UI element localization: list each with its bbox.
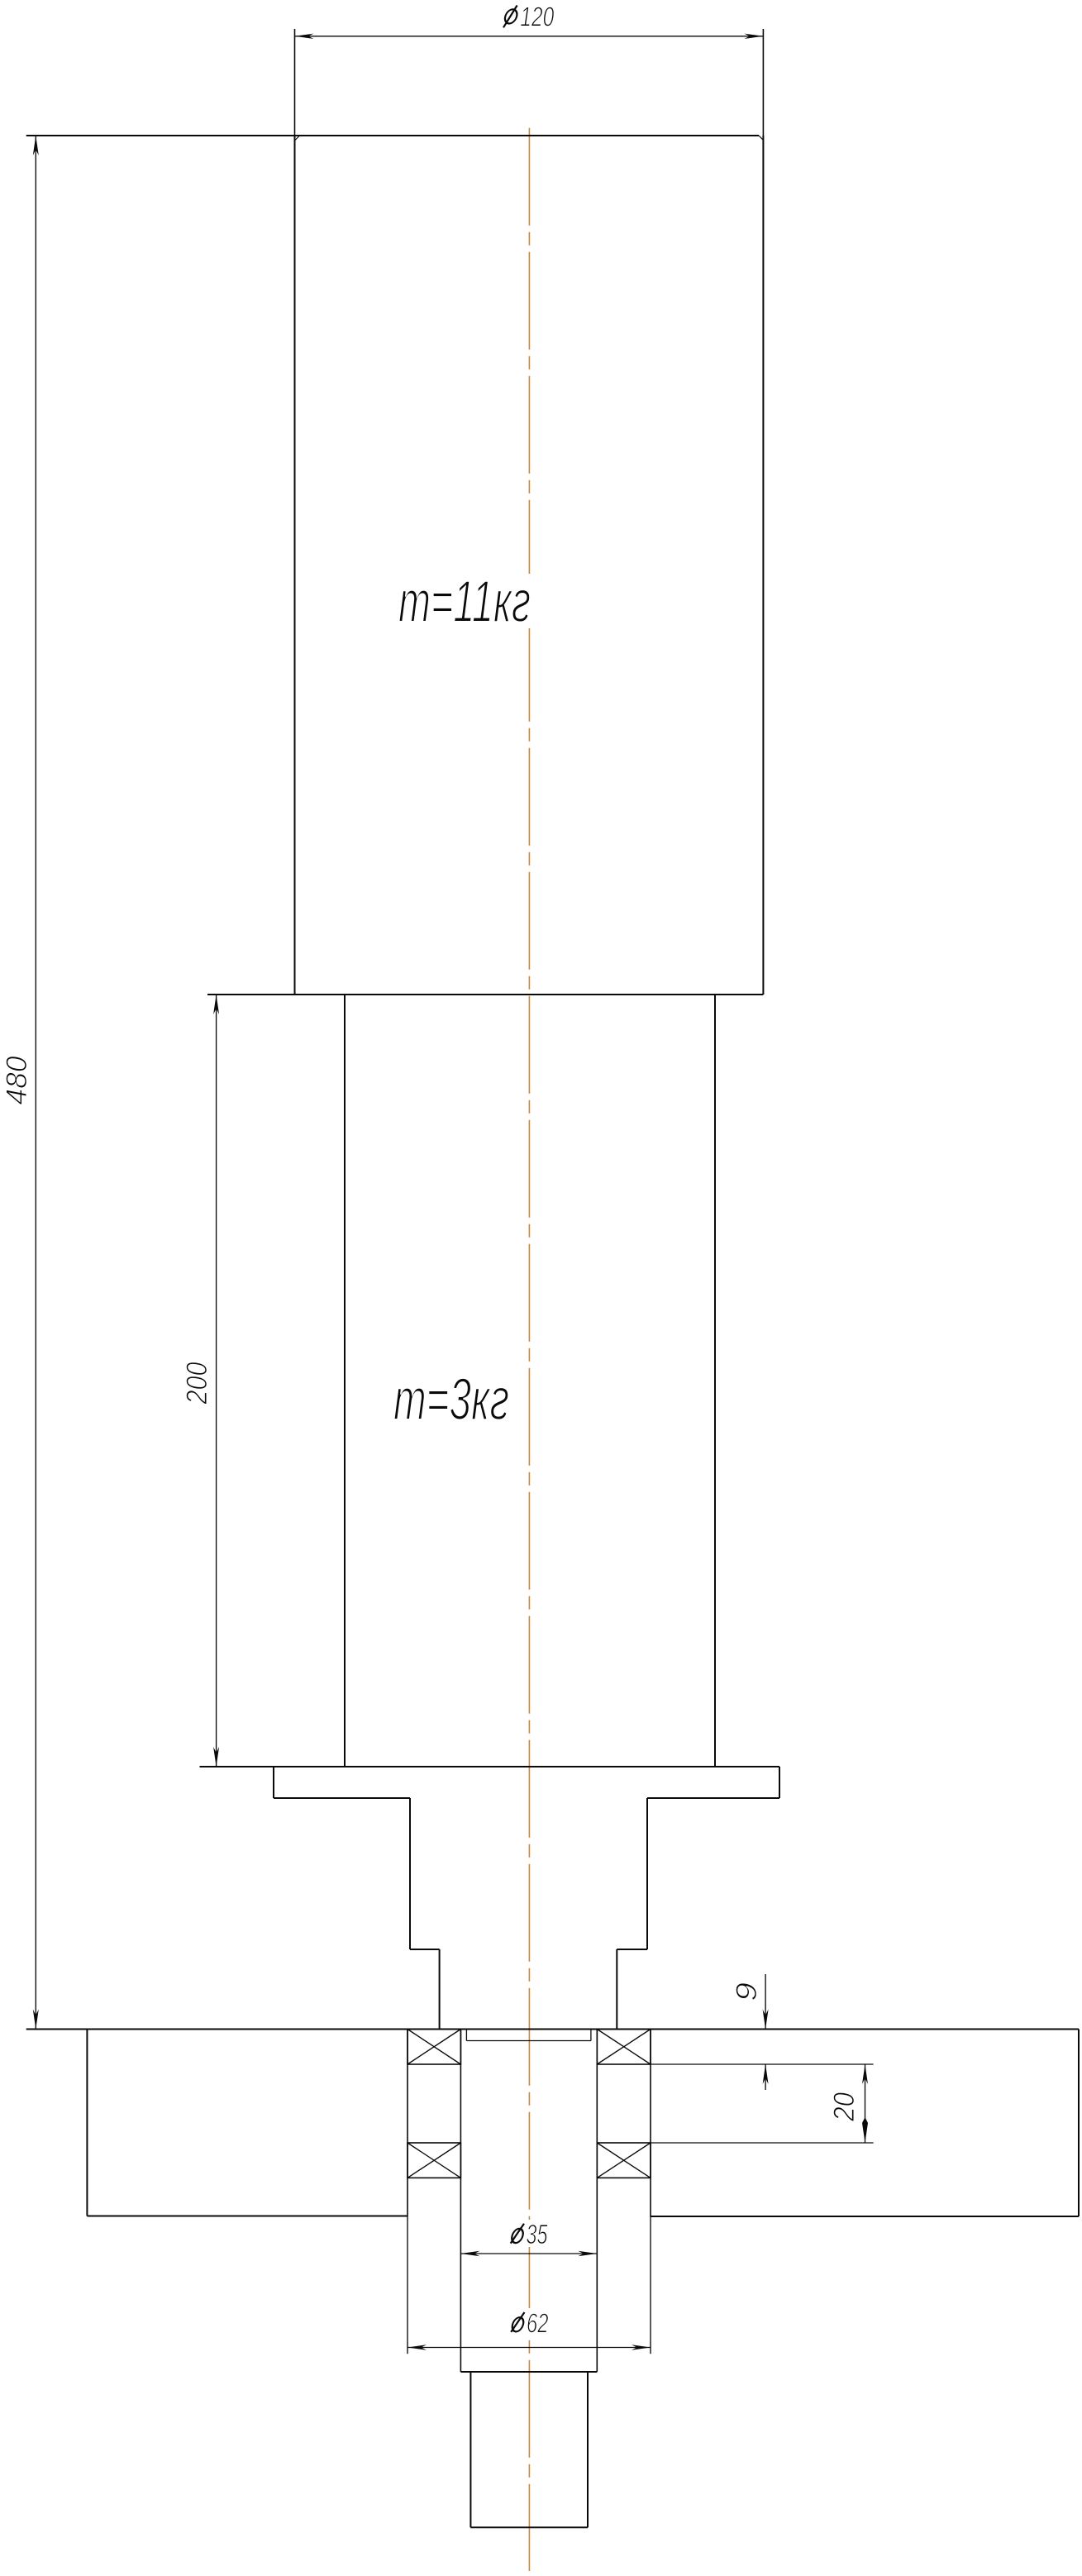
- svg-text:200: 200: [181, 1362, 213, 1405]
- svg-text:m=3кг: m=3кг: [393, 1367, 509, 1433]
- svg-text:35: 35: [527, 2219, 548, 2249]
- svg-text:62: 62: [527, 2307, 549, 2338]
- svg-text:20: 20: [828, 2092, 860, 2121]
- svg-text:120: 120: [520, 2, 554, 32]
- svg-text:480: 480: [1, 1056, 33, 1105]
- svg-text:9: 9: [731, 1982, 763, 2001]
- svg-text:m=11кг: m=11кг: [398, 570, 531, 635]
